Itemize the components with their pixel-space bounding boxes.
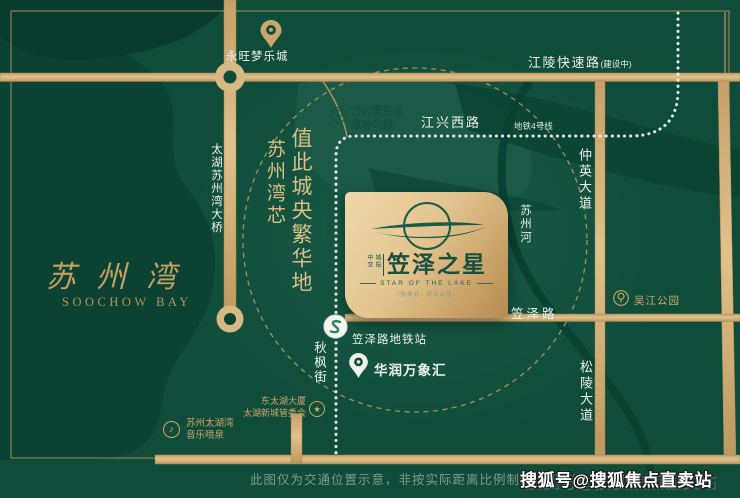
- mixc-pin-icon: [349, 353, 368, 378]
- poi-donghu-tower: 东太湖大厦太湖新城管委会: [240, 396, 306, 419]
- brand-title: 笠泽之星: [387, 253, 487, 276]
- poi-wetland-park: 万公堤生态湿地公园: [351, 105, 404, 132]
- poi-wujiang-park: 吴江公园: [634, 293, 680, 308]
- wetland-park-tree-icon: [331, 107, 347, 123]
- bay-title: 苏州湾: [46, 252, 196, 296]
- slogan-main: 值此城央繁华地: [286, 127, 316, 295]
- metro-line4-label: 地铁4号线: [514, 120, 553, 132]
- brand-card: 中交城投 笠泽之星 STAR OF THE LAKE （售楼处：恭迎品鉴）: [345, 192, 508, 318]
- road-label-qiufeng: 秋枫街: [310, 341, 329, 385]
- brand-logo-icon: [363, 199, 491, 255]
- poi-metro-station: 笠泽路地铁站: [352, 331, 427, 347]
- bridge-node: [217, 306, 244, 333]
- brand-subtitle: STAR OF THE LAKE: [360, 280, 493, 287]
- roundabout: [215, 62, 245, 92]
- sohu-watermark: 搜狐号@搜狐焦点直卖站: [520, 466, 712, 491]
- slogan-sub: 苏州湾芯: [261, 139, 288, 227]
- brand-tagline: （售楼处：恭迎品鉴）: [394, 290, 459, 298]
- road-label-taihu-bridge: 太湖苏州湾大桥: [208, 143, 224, 234]
- road-label-songling: 松陵大道: [576, 360, 595, 424]
- river-label-suzhouhe: 苏州河: [517, 204, 533, 245]
- developer-seal: 中交城投: [366, 254, 384, 276]
- music-fountain-icon: ♪: [163, 421, 180, 438]
- road-label-lize: 笠泽路: [511, 303, 558, 322]
- poi-music-fountain: 苏州太湖湾音乐喷泉: [186, 418, 234, 443]
- location-map: 永旺梦乐城 江陵快速路(建设中) 万公堤生态湿地公园 江兴西路 地铁4号线 仲英…: [0, 0, 740, 498]
- road-label-zhongying: 仲英大道: [575, 148, 594, 212]
- metro-station-icon: [323, 314, 348, 339]
- road-label-jiangling: 江陵快速路(建设中): [528, 52, 632, 71]
- jiangling-note: (建设中): [601, 59, 632, 69]
- committee-star-icon: ★: [309, 401, 325, 417]
- map-disclaimer: 此图仅为交通位置示意，非按实际距离比例制作: [250, 469, 534, 488]
- aeon-mall-pin-icon: [260, 20, 282, 48]
- poi-mixc: 华润万象汇: [374, 359, 447, 379]
- road-label-jiangxing: 江兴西路: [421, 112, 481, 131]
- bay-subtitle: SOOCHOW BAY: [62, 295, 192, 310]
- poi-aeon-mall: 永旺梦乐城: [226, 48, 289, 64]
- wujiang-park-tree-icon: [613, 290, 629, 306]
